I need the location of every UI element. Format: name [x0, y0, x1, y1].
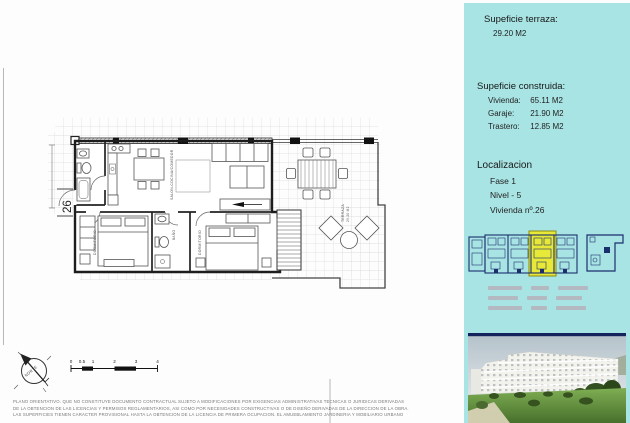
building-a-rooms	[472, 238, 574, 269]
info-sidebar: Supeficie terraza: 29.20 M2 Supeficie co…	[464, 3, 630, 423]
disclaimer-line-3: LAS SUPERFICIES TIENEN CARACTER PROVISIO…	[13, 412, 313, 418]
faded-annotations	[488, 286, 608, 316]
location-row-fase: Fase 1	[490, 176, 630, 186]
built-surface-title: Supeficie construida:	[477, 81, 630, 92]
location-title: Localizacion	[477, 160, 630, 171]
label-bathroom: BAÑO	[171, 230, 176, 240]
building-render-photo	[468, 333, 626, 423]
scale-tick: 2	[113, 359, 116, 364]
terrace-surface-value: 29.20 M2	[493, 29, 630, 38]
built-value: 21.90 M2	[530, 109, 563, 118]
built-label: Garaje:	[488, 109, 528, 118]
label-bedroom2: DORMITORIO	[198, 230, 202, 255]
built-value: 65.11 M2	[530, 96, 563, 105]
location-row-nivel: Nivel - 5	[490, 190, 630, 200]
built-row-trastero: Trastero: 12.85 M2	[488, 122, 630, 131]
built-row-garaje: Garaje: 21.90 M2	[488, 109, 630, 118]
scale-tick: 4	[156, 359, 159, 364]
scale-tick: 0	[70, 359, 73, 364]
scale-bar: 0 0.5 1 2 3 4	[70, 359, 160, 372]
brochure-page: 26 SALON-COCINA/COMEDOR DORMITORIO BAÑO …	[0, 0, 630, 423]
floor-plan-page: 26 SALON-COCINA/COMEDOR DORMITORIO BAÑO …	[0, 0, 460, 423]
label-bedroom1: DORMITORIO	[93, 230, 97, 255]
terrace-surface-title: Supeficie terraza:	[484, 14, 630, 25]
scale-tick: 1	[92, 359, 95, 364]
label-terrace: TERRAZA	[341, 204, 345, 222]
floor-plan-drawing: 26 SALON-COCINA/COMEDOR DORMITORIO BAÑO …	[0, 0, 460, 423]
built-value: 12.85 M2	[530, 122, 563, 131]
north-compass: NORTE	[14, 352, 51, 392]
building-b-outline	[587, 235, 623, 271]
label-living: SALON-COCINA/COMEDOR	[170, 149, 174, 200]
scale-tick: 0.5	[79, 359, 86, 364]
key-plan-minimap	[467, 229, 627, 279]
built-row-vivienda: Vivienda: 65.11 M2	[488, 96, 630, 105]
built-label: Vivienda:	[488, 96, 528, 105]
location-row-vivienda: Vivienda nº.26	[490, 205, 630, 215]
disclaimer-line-2: DE LA OBTENCION DE LAS LICENCIAS Y PERMI…	[13, 406, 313, 412]
label-terrace-area: 29.20 M2	[346, 206, 350, 222]
built-label: Trastero:	[488, 122, 528, 131]
disclaimer-line-1: PLANO ORIENTATIVO. QUE NO CONSTITUYE DOC…	[13, 399, 313, 405]
unit-number-text: 26	[62, 200, 74, 213]
scale-tick: 3	[135, 359, 138, 364]
